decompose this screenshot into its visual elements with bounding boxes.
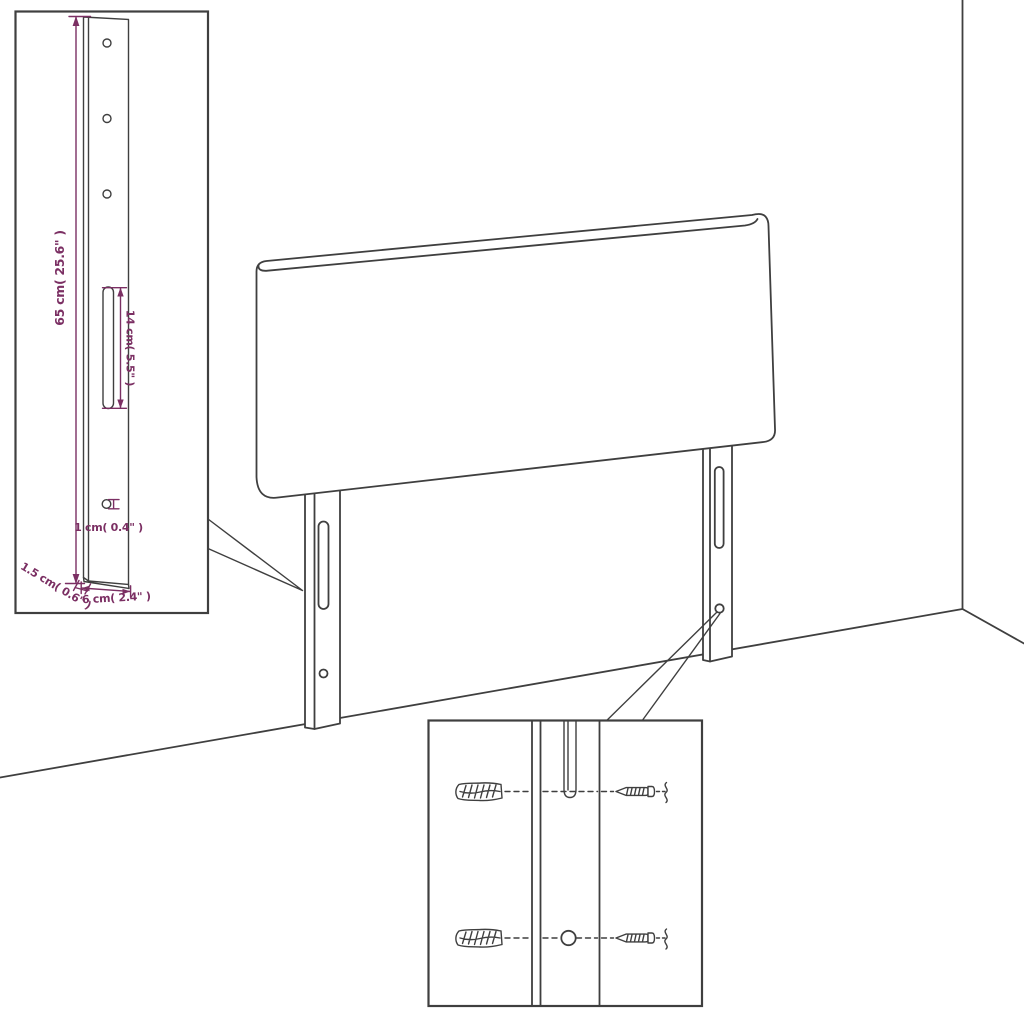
left-leg bbox=[305, 490, 340, 730]
dim-label-leg-height: 65 cm( 25.6" ) bbox=[52, 230, 67, 325]
inset-slot bbox=[103, 287, 114, 409]
mount-hole bbox=[561, 931, 575, 945]
dim-label-slot-length: 14 cm( 5.5" ) bbox=[124, 310, 137, 386]
product-diagram: 65 cm( 25.6" ) 14 cm( 5.5" ) 1 cm( 0.4" … bbox=[0, 0, 1024, 1024]
inset-hole-2 bbox=[103, 115, 111, 123]
inset-mounting-frame bbox=[429, 721, 703, 1007]
diagram-canvas: 65 cm( 25.6" ) 14 cm( 5.5" ) 1 cm( 0.4" … bbox=[0, 0, 1024, 1024]
inset-small-hole bbox=[102, 500, 111, 509]
dim-label-hole-diameter: 1 cm( 0.4" ) bbox=[74, 521, 143, 534]
inset-hole-3 bbox=[103, 190, 111, 198]
left-leg-slot bbox=[319, 522, 329, 610]
inset-leg-detail: 65 cm( 25.6" ) 14 cm( 5.5" ) 1 cm( 0.4" … bbox=[16, 12, 209, 614]
inset-hole-1 bbox=[103, 39, 111, 47]
right-leg-slot bbox=[715, 467, 724, 548]
inset-mounting-detail bbox=[429, 721, 703, 1007]
right-leg-hole bbox=[715, 604, 723, 612]
left-leg-hole bbox=[320, 670, 328, 678]
right-leg bbox=[703, 445, 732, 662]
